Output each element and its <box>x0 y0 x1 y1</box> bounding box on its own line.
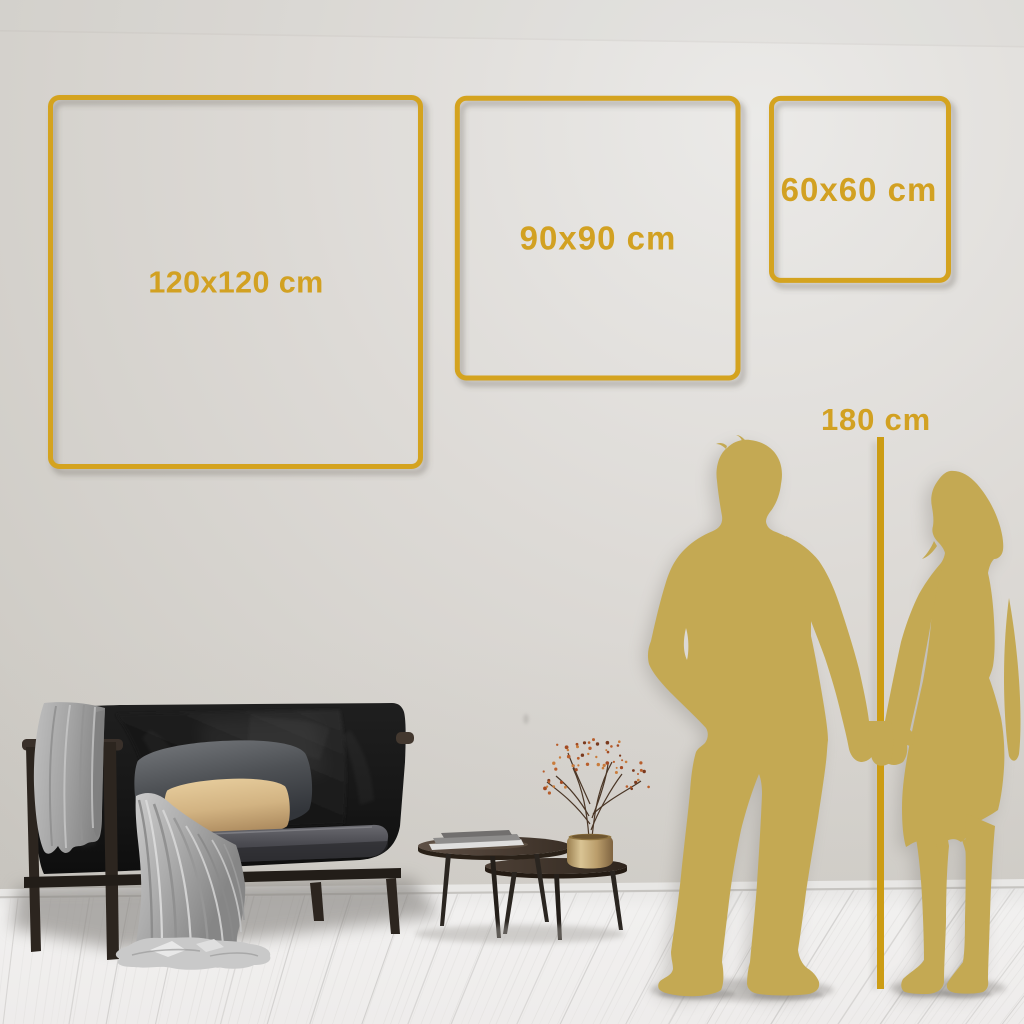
svg-text:120x120 cm: 120x120 cm <box>148 266 323 300</box>
svg-text:180 cm: 180 cm <box>821 402 931 437</box>
svg-text:60x60 cm: 60x60 cm <box>781 171 938 208</box>
svg-text:90x90 cm: 90x90 cm <box>520 220 677 257</box>
